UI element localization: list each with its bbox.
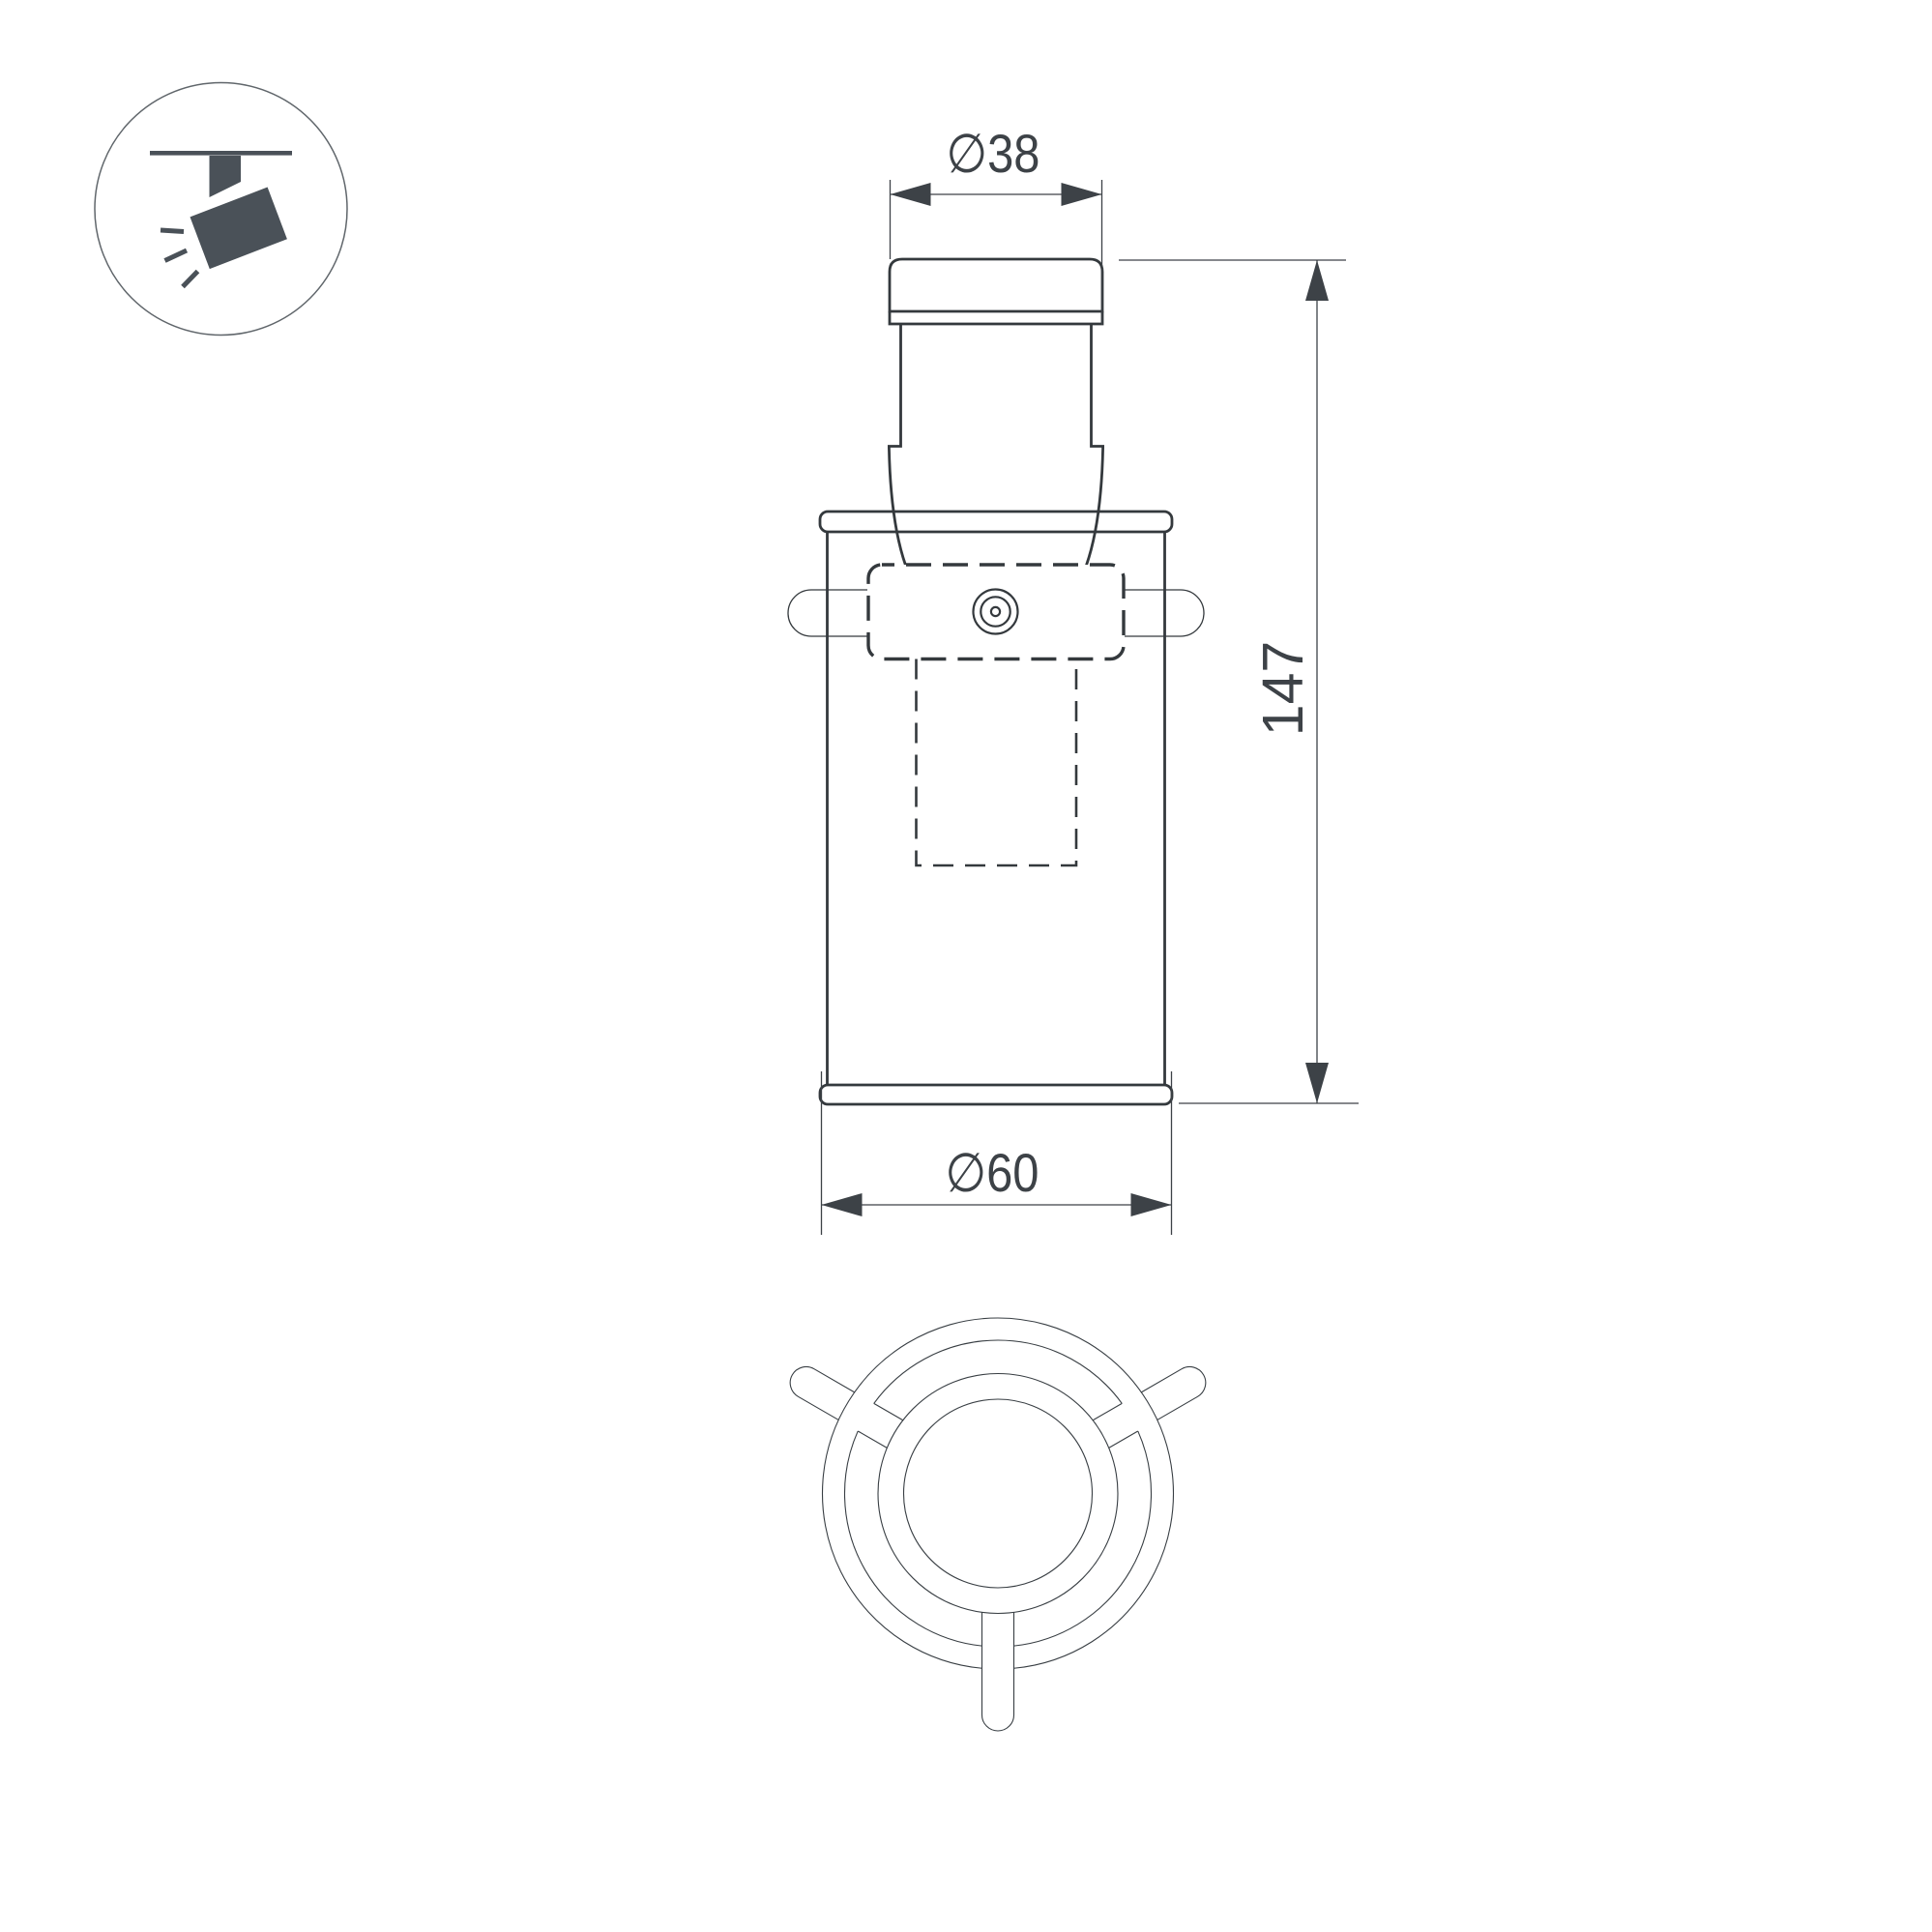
svg-text:∅38: ∅38 [947, 123, 1040, 184]
svg-text:∅60: ∅60 [946, 1142, 1039, 1203]
svg-text:147: 147 [1251, 641, 1315, 736]
